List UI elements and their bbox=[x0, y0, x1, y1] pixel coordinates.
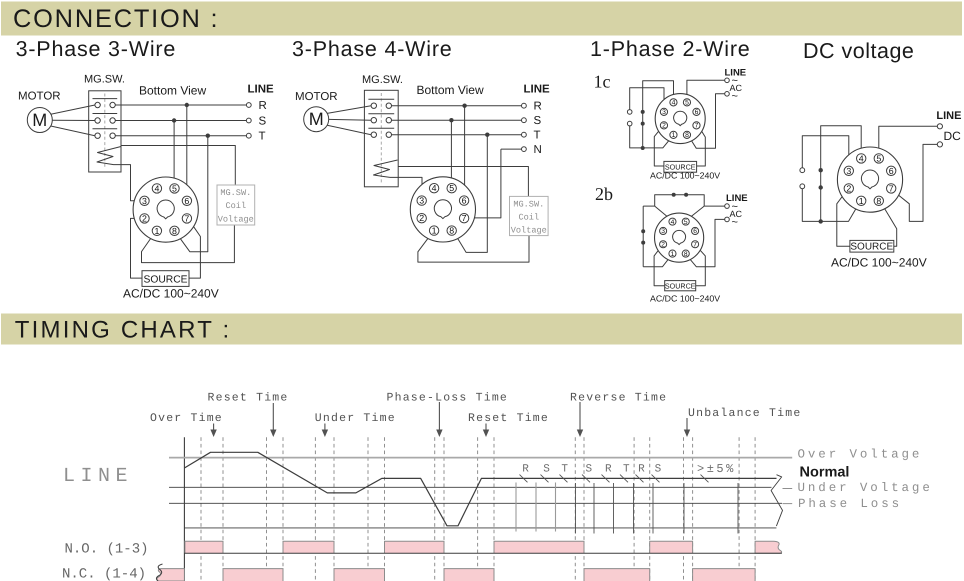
svg-text:Voltage: Voltage bbox=[218, 214, 254, 224]
svg-text:8: 8 bbox=[172, 226, 177, 236]
svg-text:Unbalance Time: Unbalance Time bbox=[688, 407, 801, 420]
svg-text:1: 1 bbox=[671, 250, 675, 258]
svg-text:4: 4 bbox=[154, 183, 159, 193]
svg-text:4: 4 bbox=[671, 218, 675, 226]
svg-text:AC/DC 100~240V: AC/DC 100~240V bbox=[650, 171, 720, 181]
svg-text:~: ~ bbox=[732, 91, 738, 103]
svg-text:LINE: LINE bbox=[248, 84, 275, 96]
svg-text:S: S bbox=[543, 464, 550, 476]
svg-text:Reset Time: Reset Time bbox=[468, 412, 549, 425]
svg-text:T: T bbox=[534, 130, 541, 142]
svg-text:5: 5 bbox=[684, 218, 688, 226]
svg-text:LINE: LINE bbox=[63, 465, 133, 488]
svg-text:~: ~ bbox=[732, 217, 738, 229]
svg-text:T: T bbox=[259, 131, 266, 143]
svg-text:1: 1 bbox=[154, 226, 159, 236]
svg-text:SOURCE: SOURCE bbox=[850, 242, 893, 253]
svg-text:AC/DC 100~240V: AC/DC 100~240V bbox=[831, 255, 927, 269]
svg-text:8: 8 bbox=[684, 250, 688, 258]
svg-text:MOTOR: MOTOR bbox=[18, 91, 61, 103]
svg-text:1-Phase 2-Wire: 1-Phase 2-Wire bbox=[590, 37, 751, 61]
svg-text:1: 1 bbox=[672, 131, 676, 139]
svg-text:Coil: Coil bbox=[225, 201, 246, 211]
svg-text:SOURCE: SOURCE bbox=[143, 275, 187, 286]
svg-text:Reverse Time: Reverse Time bbox=[570, 392, 667, 405]
svg-text:5: 5 bbox=[449, 183, 454, 193]
svg-text:AC/DC 100~240V: AC/DC 100~240V bbox=[650, 293, 720, 303]
svg-text:6: 6 bbox=[462, 196, 467, 206]
svg-text:Under Time: Under Time bbox=[315, 412, 396, 425]
svg-text:7: 7 bbox=[184, 213, 189, 223]
svg-text:2: 2 bbox=[662, 122, 666, 130]
svg-text:3-Phase 4-Wire: 3-Phase 4-Wire bbox=[292, 37, 453, 61]
svg-text:LINE: LINE bbox=[524, 84, 551, 96]
svg-text:5: 5 bbox=[172, 183, 177, 193]
svg-text:2: 2 bbox=[419, 213, 424, 223]
svg-text:R: R bbox=[605, 464, 612, 476]
svg-text:MG.SW.: MG.SW. bbox=[513, 199, 544, 209]
svg-text:6: 6 bbox=[695, 108, 699, 116]
svg-text:MOTOR: MOTOR bbox=[295, 91, 338, 103]
svg-text:M: M bbox=[309, 109, 324, 129]
svg-text:DC: DC bbox=[944, 129, 962, 143]
svg-text:Over Voltage: Over Voltage bbox=[798, 448, 923, 462]
svg-text:2: 2 bbox=[846, 183, 851, 193]
svg-text:R: R bbox=[534, 101, 542, 113]
svg-text:T: T bbox=[623, 464, 630, 476]
svg-text:TIMING CHART :: TIMING CHART : bbox=[15, 316, 232, 343]
svg-text:Phase Loss: Phase Loss bbox=[798, 497, 902, 511]
svg-text:7: 7 bbox=[889, 183, 894, 193]
svg-text:6: 6 bbox=[889, 166, 894, 176]
svg-text:DC voltage: DC voltage bbox=[803, 39, 914, 63]
svg-text:S: S bbox=[534, 115, 542, 127]
svg-text:3: 3 bbox=[846, 166, 851, 176]
svg-text:3: 3 bbox=[661, 227, 665, 235]
svg-text:MG.SW.: MG.SW. bbox=[220, 188, 251, 198]
svg-text:R: R bbox=[259, 100, 267, 112]
svg-text:N: N bbox=[534, 144, 542, 156]
svg-text:1c: 1c bbox=[594, 72, 611, 92]
svg-text:Reset Time: Reset Time bbox=[208, 392, 289, 405]
svg-text:2b: 2b bbox=[595, 184, 613, 204]
svg-text:5: 5 bbox=[876, 153, 881, 163]
svg-text:LINE: LINE bbox=[936, 110, 961, 122]
svg-text:3-Phase 3-Wire: 3-Phase 3-Wire bbox=[16, 37, 177, 61]
svg-text:N.O. (1-3): N.O. (1-3) bbox=[65, 542, 149, 558]
svg-text:R: R bbox=[638, 464, 645, 476]
svg-text:7: 7 bbox=[695, 122, 699, 130]
svg-text:8: 8 bbox=[876, 196, 881, 206]
svg-text:Bottom View: Bottom View bbox=[417, 83, 484, 97]
svg-text:MG.SW.: MG.SW. bbox=[362, 74, 403, 86]
svg-text:N.C. (1-4): N.C. (1-4) bbox=[62, 567, 146, 581]
svg-text:S: S bbox=[655, 464, 662, 476]
svg-text:SOURCE: SOURCE bbox=[665, 282, 696, 291]
svg-text:1: 1 bbox=[432, 226, 437, 236]
svg-text:Bottom View: Bottom View bbox=[139, 84, 206, 98]
svg-text:6: 6 bbox=[693, 227, 697, 235]
svg-text:M: M bbox=[32, 110, 47, 130]
svg-text:AC/DC 100~240V: AC/DC 100~240V bbox=[123, 287, 219, 301]
svg-text:4: 4 bbox=[672, 99, 676, 107]
svg-text:Over Time: Over Time bbox=[150, 412, 223, 425]
svg-text:1: 1 bbox=[859, 196, 864, 206]
svg-text:4: 4 bbox=[432, 183, 437, 193]
svg-text:MG.SW.: MG.SW. bbox=[84, 74, 125, 86]
svg-text:>±5%: >±5% bbox=[697, 462, 736, 476]
svg-text:S: S bbox=[259, 116, 267, 128]
svg-text:Phase-Loss Time: Phase-Loss Time bbox=[387, 392, 509, 405]
svg-text:7: 7 bbox=[462, 213, 467, 223]
svg-text:CONNECTION :: CONNECTION : bbox=[13, 5, 219, 33]
svg-text:T: T bbox=[561, 464, 568, 476]
svg-text:Coil: Coil bbox=[518, 212, 539, 222]
svg-text:Normal: Normal bbox=[800, 464, 850, 480]
svg-text:R: R bbox=[522, 464, 529, 476]
svg-text:Voltage: Voltage bbox=[511, 225, 547, 235]
svg-text:3: 3 bbox=[419, 196, 424, 206]
svg-text:8: 8 bbox=[449, 226, 454, 236]
svg-text:3: 3 bbox=[662, 108, 666, 116]
svg-text:S: S bbox=[585, 464, 592, 476]
svg-text:5: 5 bbox=[685, 99, 689, 107]
svg-text:7: 7 bbox=[693, 240, 697, 248]
svg-text:6: 6 bbox=[184, 196, 189, 206]
svg-text:2: 2 bbox=[661, 240, 665, 248]
svg-text:2: 2 bbox=[142, 213, 147, 223]
svg-text:8: 8 bbox=[685, 131, 689, 139]
svg-text:3: 3 bbox=[142, 196, 147, 206]
svg-text:4: 4 bbox=[859, 153, 864, 163]
svg-text:Under Voltage: Under Voltage bbox=[798, 481, 933, 495]
